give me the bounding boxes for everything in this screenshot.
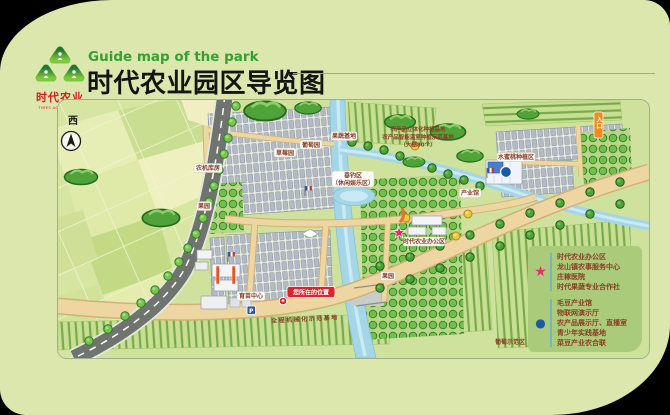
map-label-nursery: 育苗中心	[237, 292, 265, 301]
park-map-card: 时代农业 TIMES AGRICULTURE Guide map of the …	[0, 0, 670, 415]
header-divider	[293, 73, 655, 74]
svg-text:P: P	[249, 308, 254, 315]
map-label-fishing: 垂钓区（休闲娱乐区）	[332, 171, 374, 187]
svg-text:（大棚80个）: （大棚80个）	[400, 141, 435, 149]
legend-item: 时代农业办公区	[557, 252, 620, 262]
legend-item: 物联网演示厅	[557, 308, 627, 318]
svg-text:葡萄园: 葡萄园	[301, 141, 320, 149]
star-legend-icon: ★	[532, 265, 549, 279]
map-legend: ★ 时代农业办公区 龙山镇农事服务中心 庄稼医院 时代果蔬专业合作社 ● 毛豆产…	[528, 246, 642, 352]
legend-group-circle: ● 毛豆产业馆 物联网演示厅 农产品展示厅、直播室 青少年实践基地 菜豆产业农合…	[532, 298, 637, 348]
circle-legend-icon: ●	[532, 317, 549, 329]
parking-sign: P	[247, 306, 256, 315]
svg-text:时代农业办公区: 时代农业办公区	[403, 238, 445, 246]
svg-text:垂钓区: 垂钓区	[344, 172, 362, 180]
brand-logo-icon	[31, 44, 89, 84]
legend-item: 毛豆产业馆	[557, 298, 627, 308]
legend-divider	[550, 299, 552, 347]
map-label-fruit-base: 果蔬基地	[331, 132, 357, 141]
legend-item: 青少年实践基地	[557, 328, 627, 338]
svg-text:水蜜桃种植区: 水蜜桃种植区	[498, 153, 534, 161]
map-label-office: 时代农业办公区	[403, 237, 445, 246]
page-title: 时代农业园区导览图	[87, 63, 326, 100]
entrance-tag: 入口	[594, 112, 604, 138]
svg-text:农产品智能温室种植示范基地: 农产品智能温室种植示范基地	[381, 133, 454, 141]
svg-text:（休闲娱乐区）: （休闲娱乐区）	[332, 179, 374, 187]
legend-item: 农产品展示厅、直播室	[557, 318, 627, 328]
map-label-grape: 葡萄园	[300, 140, 322, 149]
map-label-orchard-1: 果园	[197, 202, 212, 211]
svg-text:果园: 果园	[381, 272, 394, 280]
office-building	[412, 216, 442, 225]
legend-divider	[550, 253, 552, 291]
legend-item: 时代果蔬专业合作社	[557, 282, 620, 292]
svg-text:农产品立体化种植基地: 农产品立体化种植基地	[389, 125, 446, 133]
legend-item: 庄稼医院	[557, 272, 620, 282]
map-label-machinery: 农机库房	[194, 164, 222, 173]
svg-text:育苗中心: 育苗中心	[239, 292, 263, 300]
map-label-orchard-2: 果园	[381, 272, 396, 281]
svg-text:草莓园: 草莓园	[276, 149, 294, 157]
map-label-strawberry: 草莓园	[274, 148, 296, 157]
svg-text:农机库房: 农机库房	[195, 164, 220, 172]
svg-text:果园: 果园	[197, 202, 210, 210]
svg-text:入口: 入口	[595, 116, 604, 130]
map-label-grape-demo: 葡萄示范区	[494, 338, 525, 346]
blue-circle-marker	[501, 167, 512, 178]
legend-group-star: ★ 时代农业办公区 龙山镇农事服务中心 庄稼医院 时代果蔬专业合作社	[532, 252, 637, 292]
svg-text:产业馆: 产业馆	[461, 189, 479, 197]
svg-text:果蔬基地: 果蔬基地	[331, 132, 356, 140]
park-map[interactable]: 西 P 入口 草莓园 葡萄园 果蔬基地 农机库房	[57, 99, 650, 359]
legend-item: 菜豆产业农合联	[557, 338, 627, 348]
map-label-peach: 水蜜桃种植区	[497, 153, 535, 162]
svg-text:您所在的位置: 您所在的位置	[293, 288, 329, 296]
map-label-industry-hall: 产业馆	[459, 189, 481, 198]
compass-west-label: 西	[68, 115, 78, 127]
legend-item: 龙山镇农事服务中心	[557, 262, 620, 272]
red-banner	[216, 266, 220, 284]
red-banner	[232, 266, 236, 284]
